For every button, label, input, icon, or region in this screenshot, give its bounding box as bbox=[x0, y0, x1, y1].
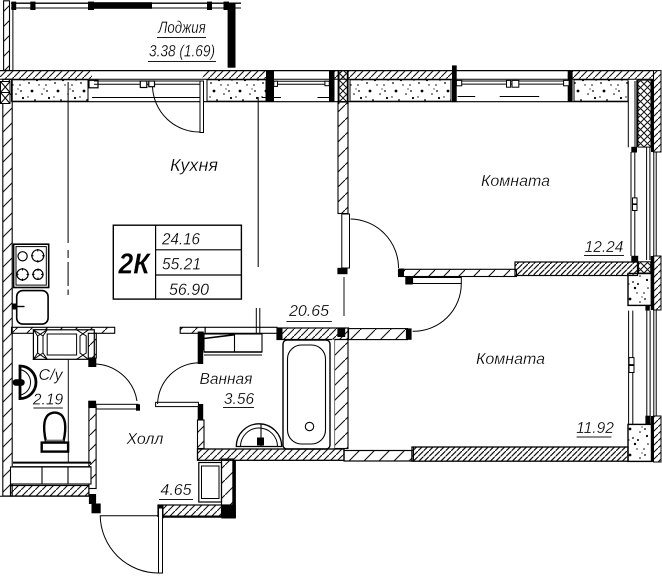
svg-text:2.19: 2.19 bbox=[32, 392, 64, 409]
svg-text:55.21: 55.21 bbox=[162, 255, 201, 274]
svg-text:Лоджия: Лоджия bbox=[157, 18, 205, 37]
svg-text:Комната: Комната bbox=[476, 351, 545, 368]
svg-text:Холл: Холл bbox=[126, 431, 164, 448]
svg-text:Комната: Комната bbox=[481, 173, 550, 190]
svg-text:4.65: 4.65 bbox=[160, 482, 191, 499]
svg-text:24.16: 24.16 bbox=[161, 230, 200, 249]
svg-text:20.65: 20.65 bbox=[288, 303, 329, 320]
svg-text:11.92: 11.92 bbox=[576, 420, 614, 437]
svg-text:56.90: 56.90 bbox=[169, 280, 210, 299]
svg-text:3.56: 3.56 bbox=[224, 391, 255, 408]
svg-text:3.38 (1.69): 3.38 (1.69) bbox=[149, 42, 215, 61]
svg-text:12.24: 12.24 bbox=[585, 239, 624, 256]
svg-text:Кухня: Кухня bbox=[170, 155, 218, 175]
svg-text:2К: 2К bbox=[118, 249, 152, 281]
svg-text:С/у: С/у bbox=[39, 367, 64, 384]
svg-text:Ванная: Ванная bbox=[200, 371, 253, 388]
